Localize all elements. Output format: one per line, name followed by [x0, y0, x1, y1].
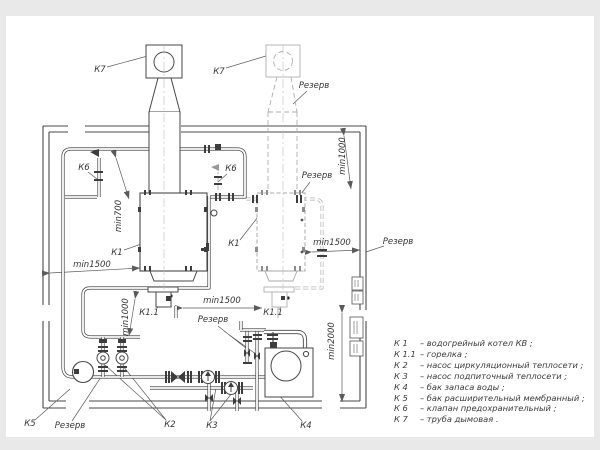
- label-min2000: min2000: [327, 322, 337, 360]
- legend-description: – насос циркуляционный теплосети ;: [420, 360, 583, 371]
- legend: К 1– водогрейный котел КВ ;К 1.1– горелк…: [394, 338, 585, 425]
- label-k6-right: К6: [225, 164, 236, 174]
- legend-key: К 7: [394, 414, 420, 425]
- label-k3: К3: [206, 421, 217, 431]
- legend-description: – бак расширительный мембранный ;: [420, 393, 585, 404]
- label-rezerv-center: Резерв: [198, 315, 229, 325]
- legend-description: – насос подпиточный теплосети ;: [420, 371, 567, 382]
- legend-row: К 4– бак запаса воды ;: [394, 382, 585, 393]
- legend-key: К 5: [394, 393, 420, 404]
- label-rezerv-wall: Резерв: [383, 237, 414, 247]
- label-min1000-right: min1000: [338, 137, 348, 175]
- label-min1500-right: min1500: [313, 238, 351, 248]
- legend-row: К 5– бак расширительный мембранный ;: [394, 393, 585, 404]
- gauge-icon: [211, 210, 217, 216]
- legend-row: К 6– клапан предохранительный ;: [394, 403, 585, 414]
- label-min1000-left: min1000: [121, 298, 131, 336]
- legend-description: – бак запаса воды ;: [420, 382, 505, 393]
- label-rezerv-pipe: Резерв: [302, 171, 333, 181]
- legend-row: К 1.1– горелка ;: [394, 349, 585, 360]
- legend-row: К 1– водогрейный котел КВ ;: [394, 338, 585, 349]
- label-k4: К4: [300, 421, 311, 431]
- legend-description: – клапан предохранительный ;: [420, 403, 556, 414]
- label-k1-left: К1: [111, 248, 122, 258]
- legend-description: – водогрейный котел КВ ;: [420, 338, 533, 349]
- label-min1500-center: min1500: [203, 296, 241, 306]
- label-k7-left: К7: [94, 65, 105, 75]
- electrical-panels: [350, 277, 363, 356]
- expansion-tank-k5: [73, 362, 94, 383]
- label-k11-left: К1.1: [139, 308, 159, 318]
- legend-key: К 1: [394, 338, 420, 349]
- label-min1500-left: min1500: [73, 260, 111, 270]
- legend-key: К 1.1: [394, 349, 420, 360]
- boiler-room-drawing: К7К7РезервК6К6min700К1min1500min1000К1.1…: [0, 0, 600, 450]
- legend-description: – горелка ;: [420, 349, 467, 360]
- legend-key: К 4: [394, 382, 420, 393]
- legend-key: К 6: [394, 403, 420, 414]
- legend-key: К 2: [394, 360, 420, 371]
- reserve-safety-valve-icon: [211, 164, 219, 171]
- label-k6-left: К6: [78, 163, 89, 173]
- legend-description: – труба дымовая .: [420, 414, 499, 425]
- label-min700: min700: [114, 200, 124, 232]
- legend-row: К 2– насос циркуляционный теплосети ;: [394, 360, 585, 371]
- label-k11-right: К1.1: [263, 308, 283, 318]
- label-k2: К2: [164, 420, 175, 430]
- label-rezerv-pump: Резерв: [55, 421, 86, 431]
- label-k5: К5: [24, 419, 35, 429]
- legend-row: К 3– насос подпиточный теплосети ;: [394, 371, 585, 382]
- label-k7-right: К7: [213, 67, 224, 77]
- legend-key: К 3: [394, 371, 420, 382]
- label-rezerv-chimney: Резерв: [299, 81, 330, 91]
- legend-row: К 7– труба дымовая .: [394, 414, 585, 425]
- label-k1-right: К1: [228, 239, 239, 249]
